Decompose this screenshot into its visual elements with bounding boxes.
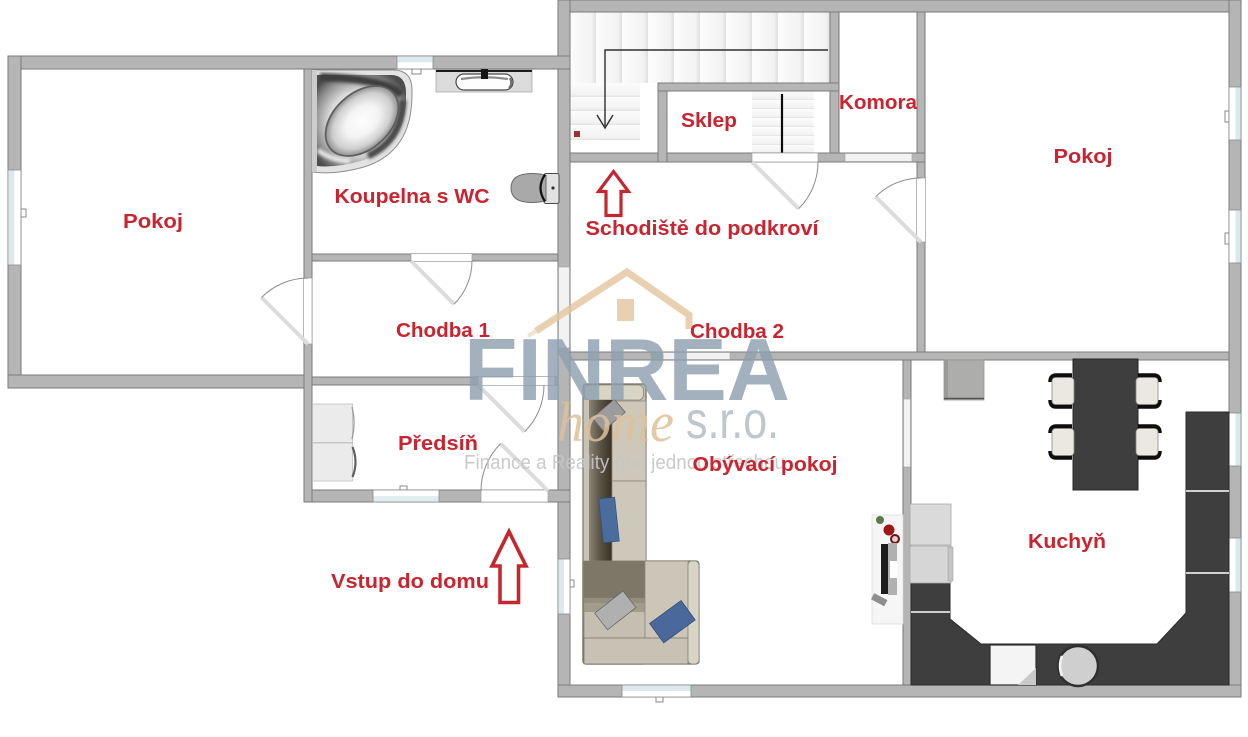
- svg-text:Vstup do domu: Vstup do domu: [331, 571, 489, 593]
- svg-text:Chodba 1: Chodba 1: [396, 320, 490, 342]
- svg-text:Chodba 2: Chodba 2: [690, 321, 784, 343]
- svg-text:Koupelna s WC: Koupelna s WC: [335, 186, 490, 208]
- svg-text:s.r.o.: s.r.o.: [686, 392, 779, 450]
- svg-text:Pokoj: Pokoj: [1054, 146, 1113, 168]
- svg-text:home: home: [557, 392, 674, 454]
- svg-text:Pokoj: Pokoj: [123, 211, 183, 233]
- svg-text:Obývací pokoj: Obývací pokoj: [693, 454, 838, 476]
- svg-text:Kuchyň: Kuchyň: [1028, 531, 1106, 553]
- svg-text:Schodiště do podkroví: Schodiště do podkroví: [586, 218, 821, 240]
- svg-text:Předsíň: Předsíň: [398, 433, 478, 455]
- svg-text:Sklep: Sklep: [681, 110, 737, 132]
- svg-text:Komora: Komora: [839, 92, 918, 114]
